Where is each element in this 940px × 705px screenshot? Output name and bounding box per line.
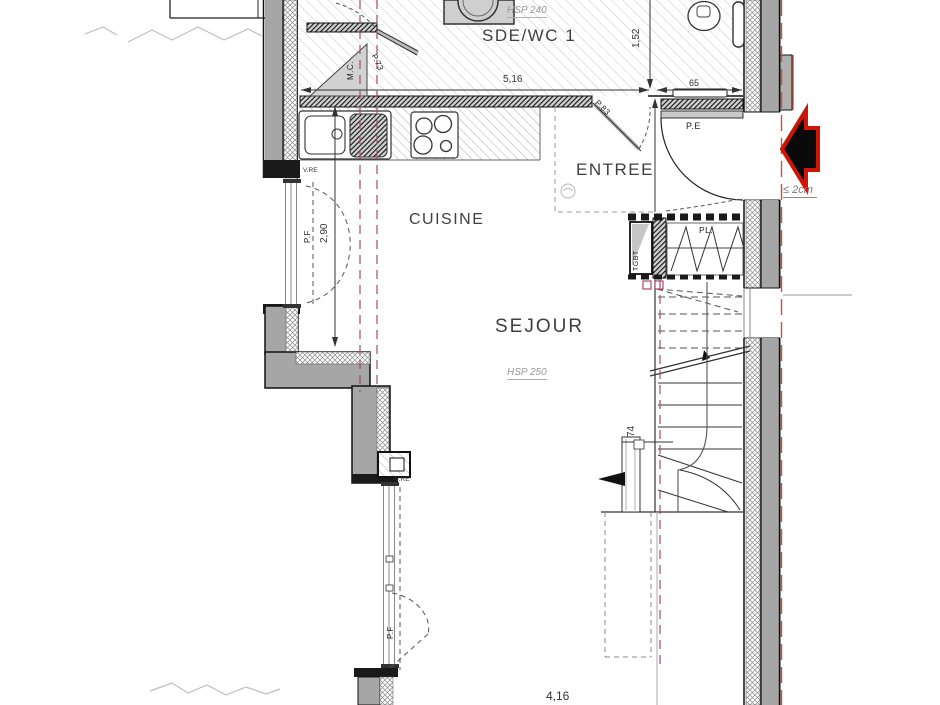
closet-label-pl: PL. (699, 226, 713, 235)
stair-wall-stub (653, 218, 666, 278)
radiator-icon (733, 2, 744, 47)
room-label-entree: ENTREE (576, 161, 654, 178)
ceiling-height-sdewc: HSP 240 (507, 6, 547, 18)
threshold-note: ≤ 2cm (783, 185, 817, 198)
walls (263, 0, 852, 705)
entry-arrow-icon (782, 110, 818, 188)
window-bay-upper (283, 179, 350, 308)
staircase (598, 280, 750, 705)
newel-post (643, 281, 651, 289)
window-bay-lower (381, 482, 429, 670)
plan-linework (0, 0, 940, 705)
shutter-label-lower: V.RE (395, 477, 410, 484)
entry-door-pe (661, 111, 743, 211)
closet-label-mc: M.C. (347, 61, 355, 80)
ceiling-height-sejour: HSP 250 (507, 368, 547, 380)
dim-sde-width: 5,16 (503, 75, 522, 85)
door-label-pe: P.E (686, 122, 701, 131)
newel-post (655, 281, 663, 289)
vegetation-sketch (85, 27, 262, 42)
washing-machine-icon (444, 0, 514, 24)
floor-plan: SDE/WC 1 HSP 240 5,16 1,52 65 CUISINE EN… (0, 0, 940, 705)
door-label-pf-upper: P.F (304, 230, 312, 243)
room-label-sdewc: SDE/WC 1 (482, 27, 576, 44)
room-label-sejour: SEJOUR (495, 317, 584, 336)
dim-stair-width: 74 (627, 426, 637, 437)
vegetation-sketch (150, 683, 280, 695)
dim-sde-depth: 1,52 (632, 29, 642, 48)
door-label-pf-lower: P.F (387, 626, 395, 639)
cooktop-icon (411, 112, 458, 158)
toilet-icon (688, 2, 720, 31)
panel-label-tgbt: TGBT (633, 250, 640, 271)
room-label-cuisine: CUISINE (409, 212, 484, 228)
dim-bay-height: 2,90 (320, 224, 330, 243)
dim-entry-recess: 65 (689, 79, 699, 88)
dim-sejour-width: 4,16 (546, 690, 569, 702)
shutter-label-upper: V.RE (303, 168, 318, 175)
